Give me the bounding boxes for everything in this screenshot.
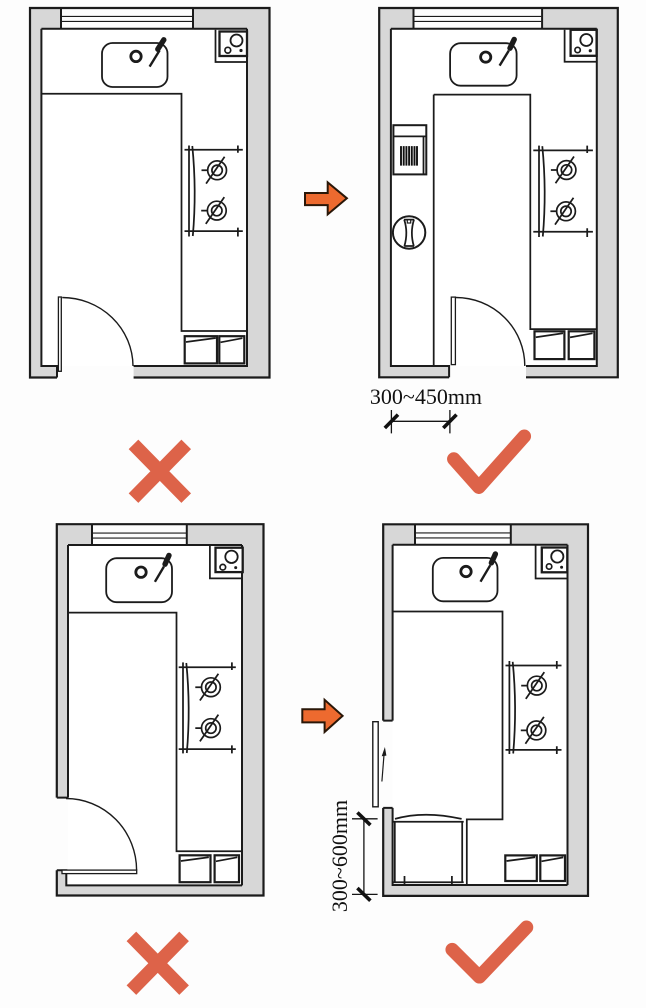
- svg-text:300~450mm: 300~450mm: [370, 384, 482, 409]
- svg-text:300~600mm: 300~600mm: [327, 800, 352, 912]
